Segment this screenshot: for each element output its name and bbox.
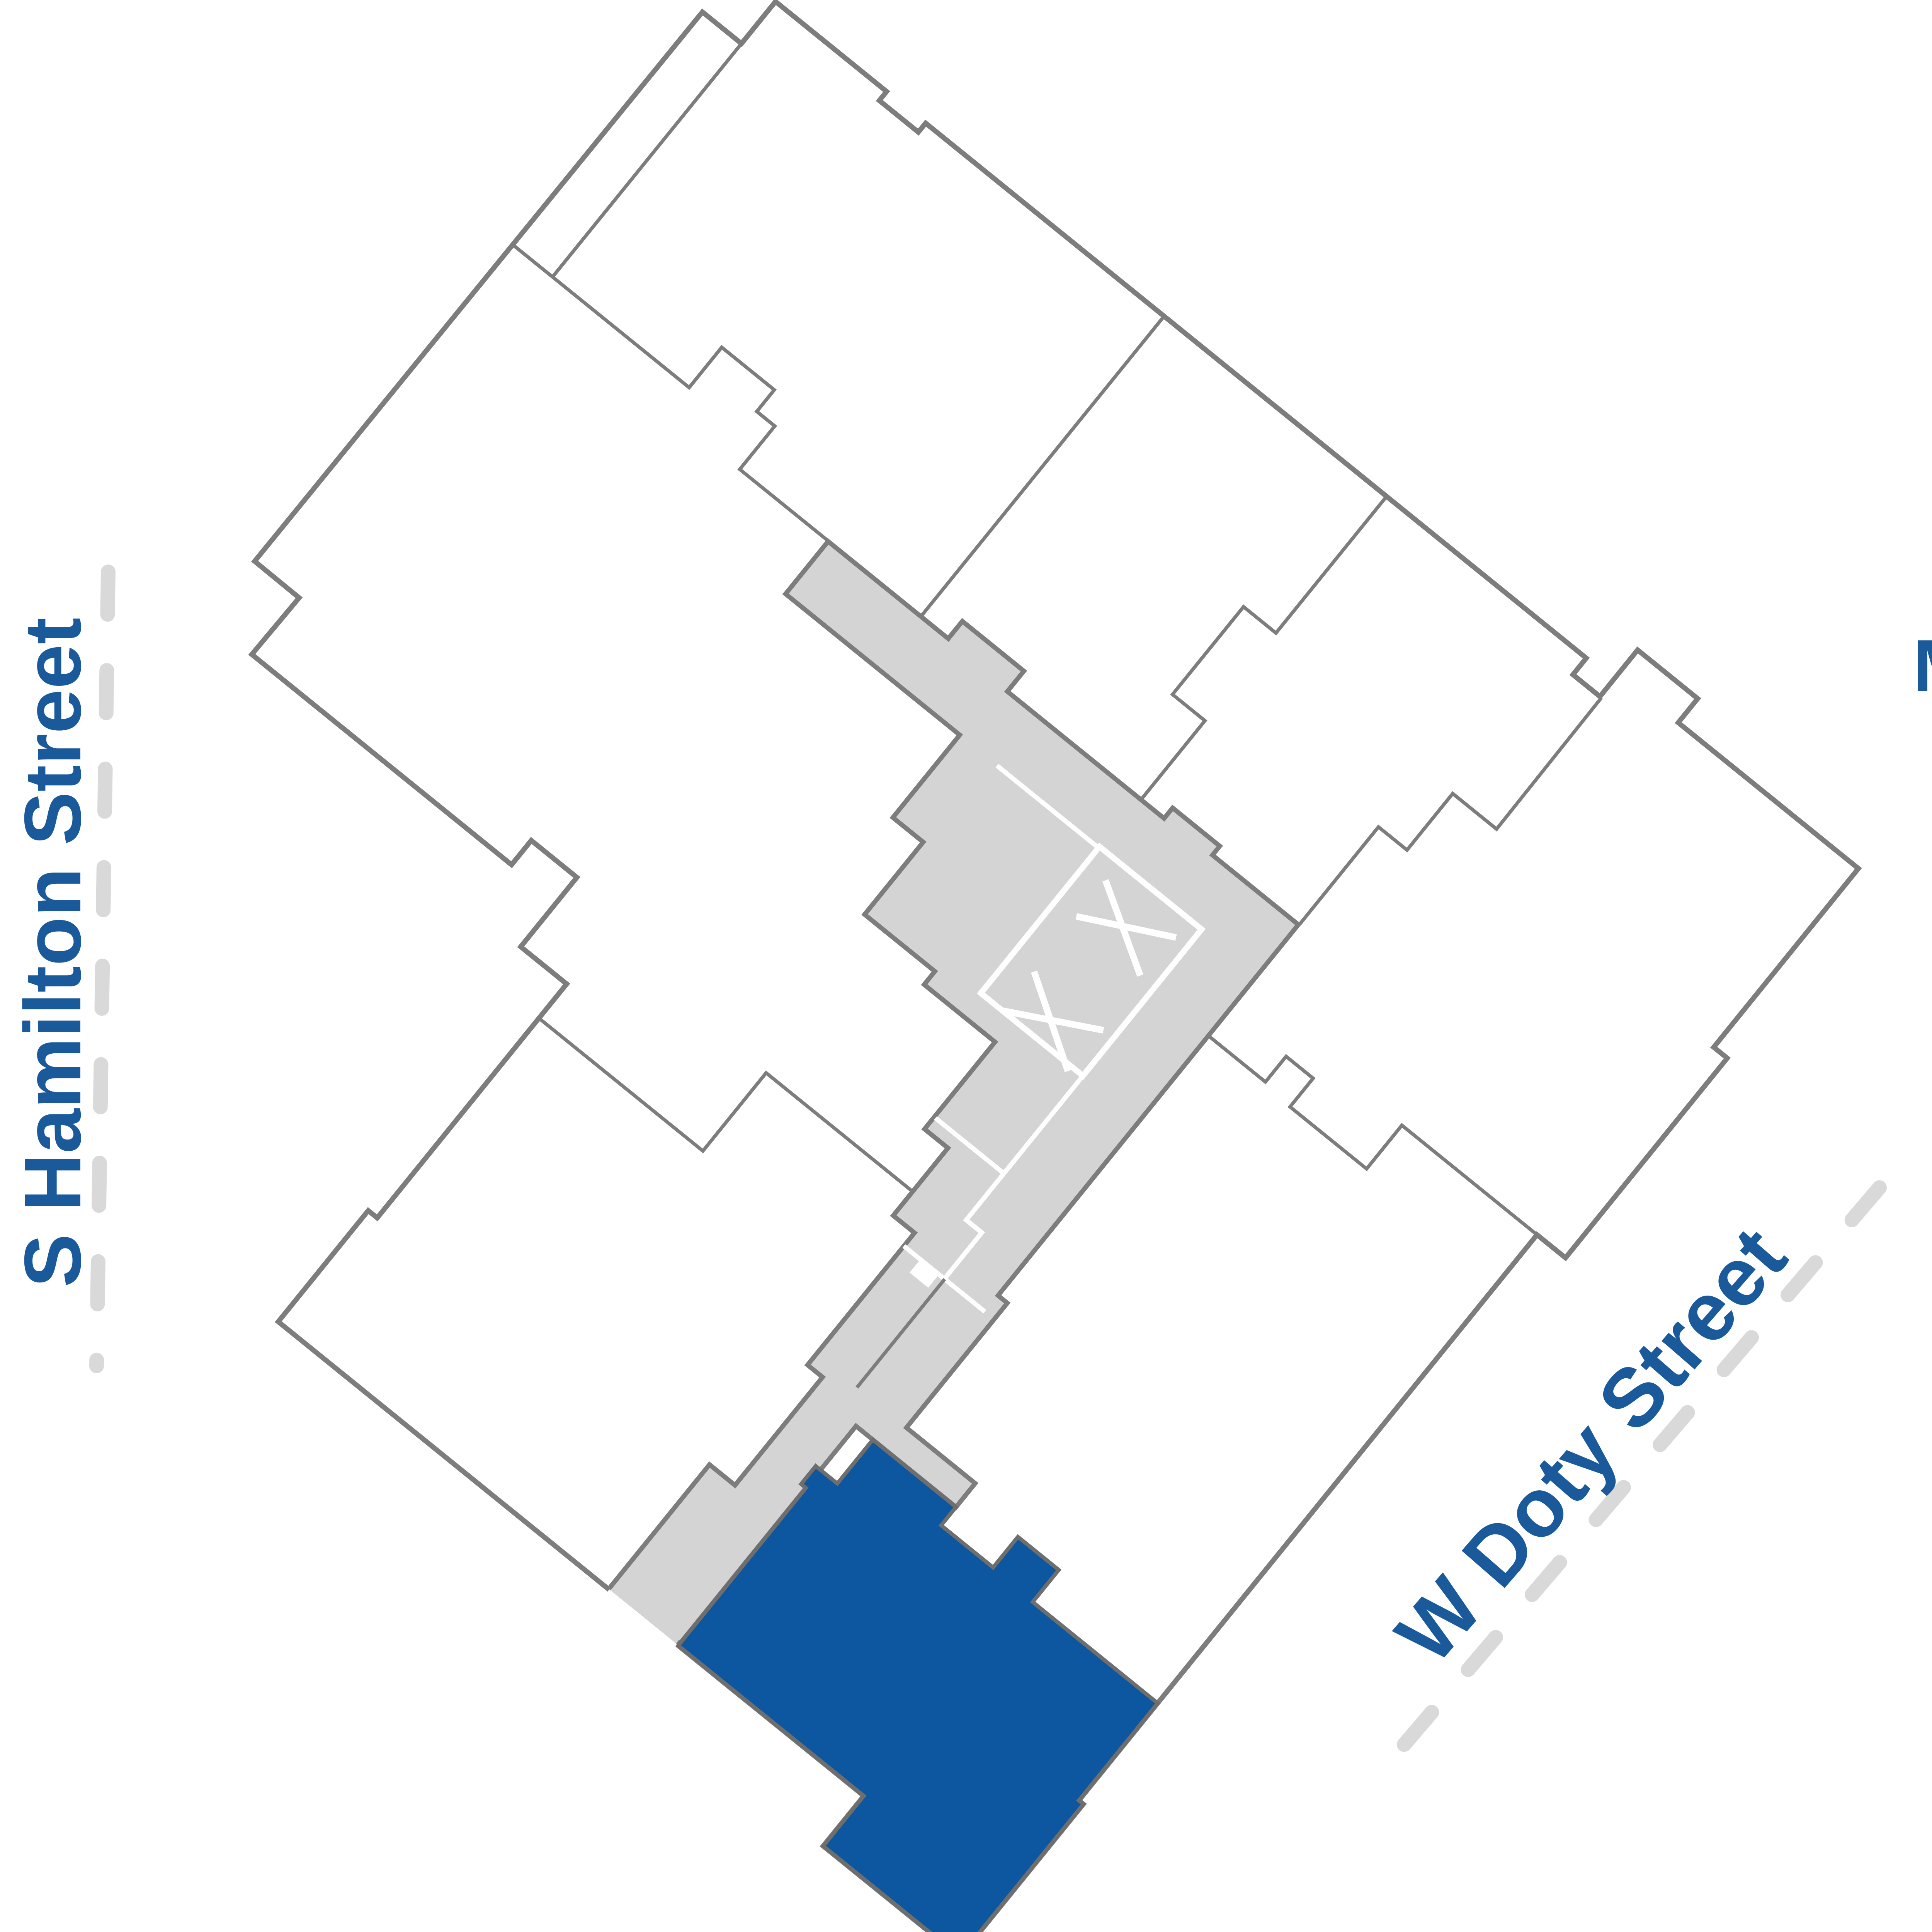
svg-text:S Hamilton Street: S Hamilton Street [8,617,98,1287]
svg-text:Monona: Monona [1913,625,1932,707]
